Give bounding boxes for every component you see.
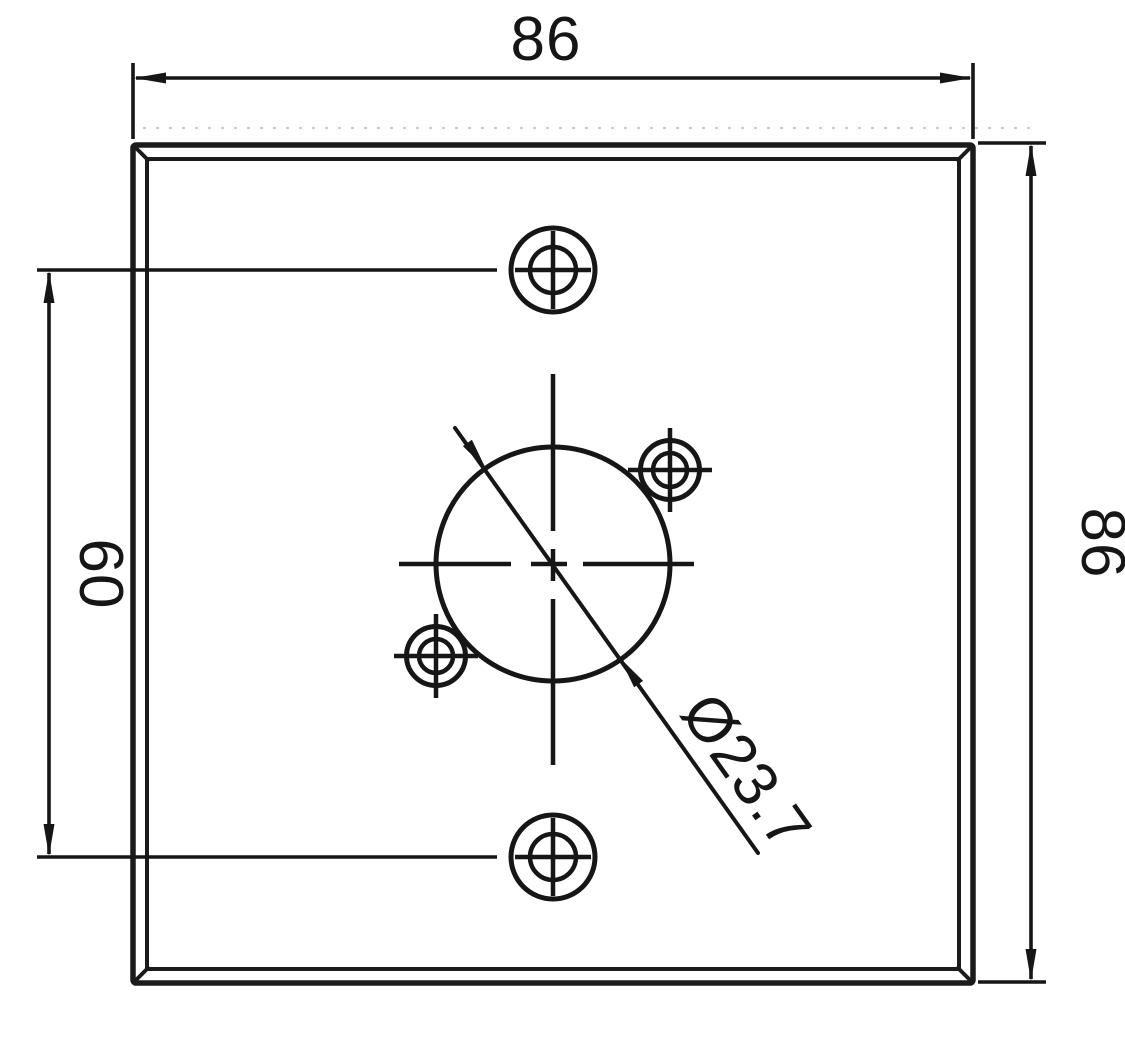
mounting-hole-top <box>511 228 595 312</box>
dim-label-left-hole-spacing: 60 <box>66 539 135 610</box>
mounting-hole-bottom <box>511 815 595 899</box>
engineering-drawing: Ø23.7 86 <box>0 0 1125 1037</box>
drawing-canvas: Ø23.7 86 <box>0 0 1125 1037</box>
dim-label-right-height: 86 <box>1068 508 1125 579</box>
dim-label-top-width: 86 <box>511 5 582 74</box>
drawing-background <box>0 0 1125 1037</box>
